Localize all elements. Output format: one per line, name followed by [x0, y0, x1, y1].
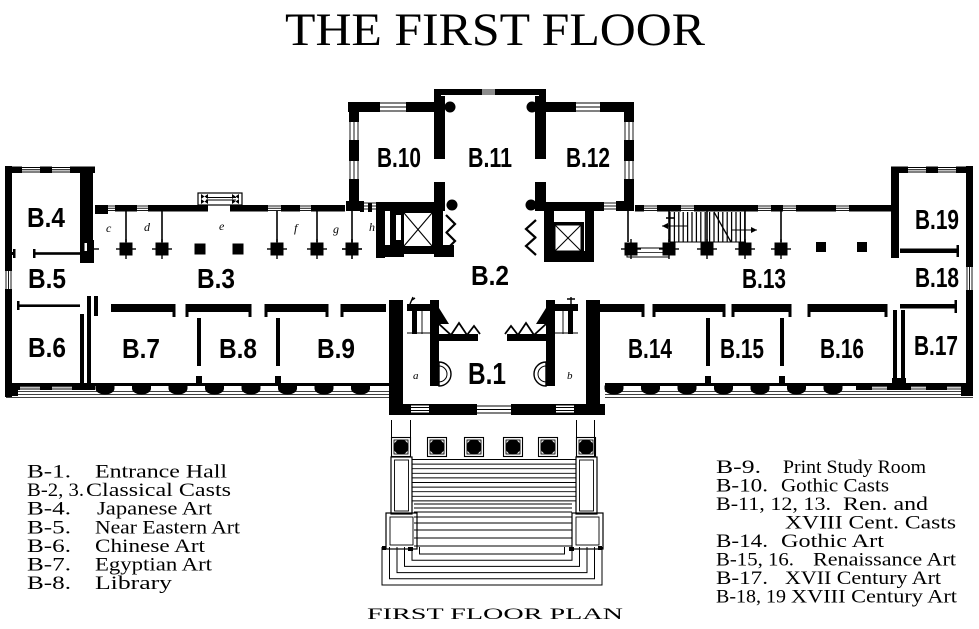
- svg-text:B.19: B.19: [915, 204, 959, 235]
- svg-text:B.17: B.17: [914, 330, 958, 361]
- svg-text:h: h: [369, 220, 375, 234]
- svg-text:XVIII Century Art: XVIII Century Art: [791, 587, 958, 608]
- svg-text:c: c: [106, 221, 112, 235]
- svg-text:B-8.: B-8.: [27, 573, 71, 594]
- svg-text:B.14: B.14: [628, 333, 672, 364]
- svg-text:B.10: B.10: [377, 142, 421, 173]
- svg-text:Library: Library: [95, 573, 173, 594]
- svg-text:B.5: B.5: [28, 263, 66, 294]
- svg-text:B.13: B.13: [742, 263, 786, 294]
- svg-text:B.11: B.11: [468, 142, 512, 173]
- svg-text:B.15: B.15: [720, 333, 764, 364]
- svg-text:a: a: [413, 370, 419, 382]
- svg-text:B-18, 19: B-18, 19: [716, 587, 786, 608]
- svg-text:B.18: B.18: [915, 262, 959, 293]
- svg-text:FIRST FLOOR PLAN: FIRST FLOOR PLAN: [367, 606, 623, 623]
- svg-text:B.9: B.9: [317, 333, 355, 364]
- svg-text:B.7: B.7: [122, 333, 160, 364]
- svg-text:B.1: B.1: [468, 356, 506, 391]
- svg-text:B.2: B.2: [471, 260, 509, 291]
- svg-text:B.16: B.16: [820, 333, 864, 364]
- svg-text:B.3: B.3: [197, 263, 235, 294]
- svg-text:B.6: B.6: [28, 332, 66, 363]
- svg-text:THE FIRST FLOOR: THE FIRST FLOOR: [285, 4, 706, 56]
- svg-text:g: g: [333, 222, 339, 236]
- svg-text:d: d: [144, 220, 151, 234]
- svg-text:b: b: [567, 370, 573, 382]
- svg-text:B.4: B.4: [27, 202, 65, 233]
- svg-text:B.8: B.8: [219, 333, 257, 364]
- svg-text:B.12: B.12: [566, 142, 610, 173]
- svg-text:e: e: [219, 219, 225, 233]
